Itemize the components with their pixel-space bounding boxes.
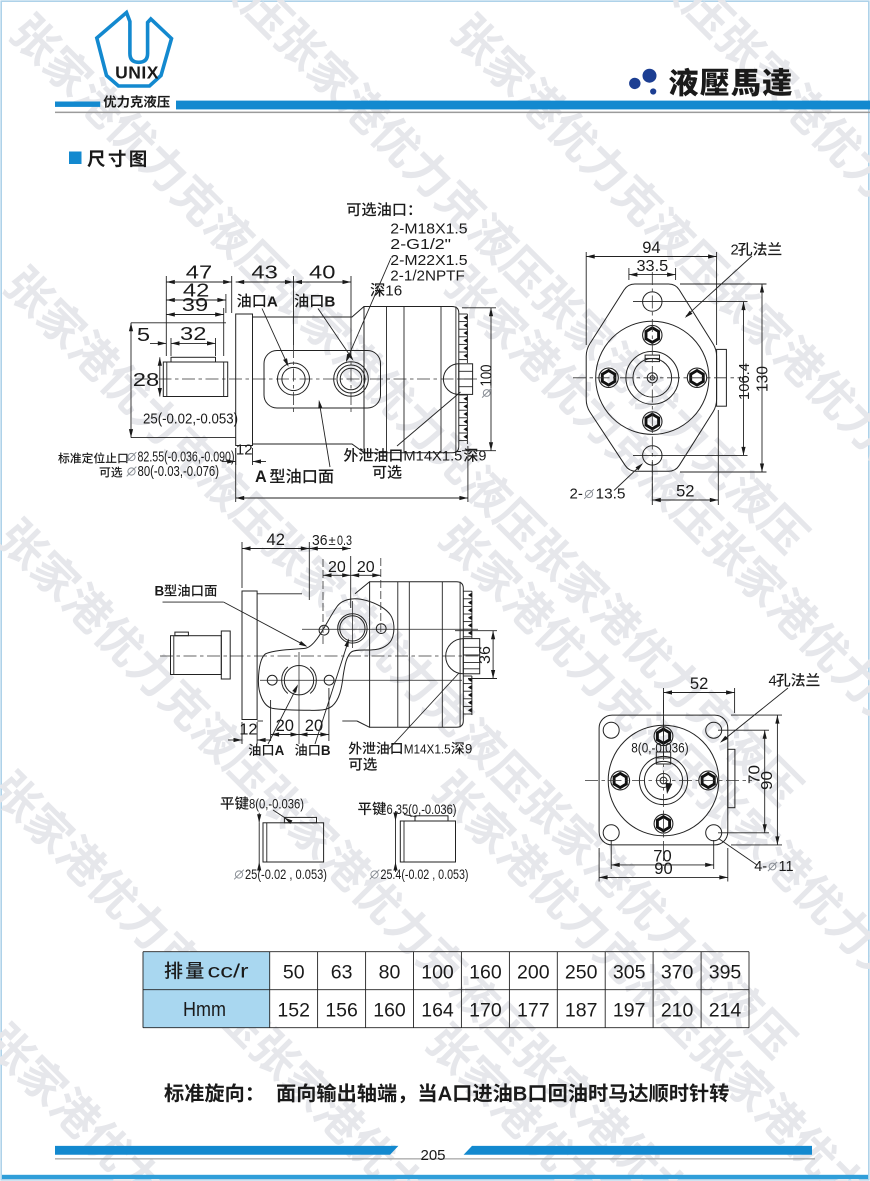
svg-text:2-M22X1.5: 2-M22X1.5 bbox=[390, 252, 467, 269]
svg-text:187: 187 bbox=[565, 1000, 598, 1022]
svg-text:11: 11 bbox=[779, 859, 794, 875]
svg-text:160: 160 bbox=[373, 1000, 406, 1022]
svg-text:50: 50 bbox=[283, 962, 305, 984]
svg-text:305: 305 bbox=[613, 962, 646, 984]
svg-text:2-M18X1.5: 2-M18X1.5 bbox=[390, 221, 467, 238]
svg-text:Hmm: Hmm bbox=[183, 999, 226, 1021]
svg-text:156: 156 bbox=[325, 1000, 358, 1022]
svg-text:130: 130 bbox=[755, 366, 772, 392]
svg-text:177: 177 bbox=[517, 1000, 550, 1022]
svg-text:5: 5 bbox=[137, 325, 150, 345]
svg-text:4: 4 bbox=[769, 674, 777, 690]
svg-text:20: 20 bbox=[328, 559, 346, 576]
svg-text:63: 63 bbox=[331, 962, 353, 984]
svg-text:36: 36 bbox=[312, 532, 328, 549]
svg-text:100: 100 bbox=[478, 364, 495, 386]
svg-text:20: 20 bbox=[276, 717, 294, 735]
svg-text:2: 2 bbox=[731, 243, 739, 259]
svg-text:UNIX: UNIX bbox=[115, 63, 159, 83]
svg-text:0.3: 0.3 bbox=[337, 533, 352, 548]
svg-text:A: A bbox=[275, 743, 285, 758]
svg-text:200: 200 bbox=[517, 962, 550, 984]
svg-text:25(-0.02,-0.053): 25(-0.02,-0.053) bbox=[143, 412, 238, 428]
svg-text:152: 152 bbox=[277, 1000, 310, 1022]
svg-text:cc/r: cc/r bbox=[208, 962, 250, 983]
svg-text:80: 80 bbox=[379, 962, 401, 984]
svg-text:8(0,-0.036): 8(0,-0.036) bbox=[249, 796, 304, 812]
svg-text:47: 47 bbox=[186, 263, 212, 283]
svg-text:370: 370 bbox=[661, 962, 694, 984]
svg-text:A: A bbox=[267, 293, 278, 310]
svg-text:9: 9 bbox=[478, 449, 486, 465]
svg-text:A: A bbox=[438, 1084, 453, 1106]
svg-text:160: 160 bbox=[469, 962, 502, 984]
svg-text:9: 9 bbox=[465, 741, 472, 756]
svg-text:B: B bbox=[324, 293, 335, 310]
svg-text:8(0,-0.036): 8(0,-0.036) bbox=[631, 739, 688, 755]
svg-text:214: 214 bbox=[709, 1000, 742, 1022]
svg-text:12: 12 bbox=[236, 442, 253, 459]
svg-text:80(-0.03,-0.076): 80(-0.03,-0.076) bbox=[138, 464, 220, 480]
svg-text:2-: 2- bbox=[570, 486, 583, 503]
svg-text:43: 43 bbox=[251, 263, 277, 283]
svg-text:210: 210 bbox=[661, 1000, 694, 1022]
svg-text:40: 40 bbox=[309, 263, 335, 283]
svg-text:52: 52 bbox=[676, 483, 694, 501]
svg-text:100: 100 bbox=[421, 962, 454, 984]
svg-text:28: 28 bbox=[133, 370, 159, 390]
svg-text:250: 250 bbox=[565, 962, 598, 984]
svg-text:B: B bbox=[155, 584, 165, 599]
svg-text:M14X1.5: M14X1.5 bbox=[403, 449, 462, 465]
svg-text:B: B bbox=[513, 1084, 528, 1106]
svg-text:16: 16 bbox=[385, 282, 402, 299]
svg-text:33.5: 33.5 bbox=[637, 258, 669, 275]
svg-text:32: 32 bbox=[180, 324, 206, 344]
svg-text:M14X1.5: M14X1.5 bbox=[404, 741, 451, 756]
svg-text:52: 52 bbox=[690, 675, 708, 693]
svg-text:197: 197 bbox=[613, 1000, 646, 1022]
svg-text:42: 42 bbox=[267, 531, 285, 549]
svg-text:±: ± bbox=[329, 533, 336, 548]
svg-text:20: 20 bbox=[357, 559, 375, 576]
svg-text:36: 36 bbox=[477, 646, 494, 664]
svg-text:90: 90 bbox=[759, 771, 776, 790]
svg-text:2-G1/2": 2-G1/2" bbox=[390, 236, 451, 253]
svg-text:106.4: 106.4 bbox=[736, 363, 753, 400]
svg-text:90: 90 bbox=[654, 860, 672, 878]
svg-text:B: B bbox=[321, 743, 331, 758]
svg-text:25(-0.02 , 0.053): 25(-0.02 , 0.053) bbox=[245, 866, 327, 882]
svg-text:39: 39 bbox=[182, 295, 208, 315]
svg-text:4-: 4- bbox=[754, 859, 767, 875]
svg-text:395: 395 bbox=[709, 962, 742, 984]
svg-text:13.5: 13.5 bbox=[596, 486, 626, 503]
svg-text:A: A bbox=[255, 468, 267, 486]
svg-text:170: 170 bbox=[469, 1000, 502, 1022]
svg-text:205: 205 bbox=[420, 1147, 445, 1164]
svg-text:94: 94 bbox=[642, 239, 660, 257]
svg-text:25.4(-0.02 , 0.053): 25.4(-0.02 , 0.053) bbox=[381, 866, 469, 882]
svg-text:164: 164 bbox=[421, 1000, 454, 1022]
